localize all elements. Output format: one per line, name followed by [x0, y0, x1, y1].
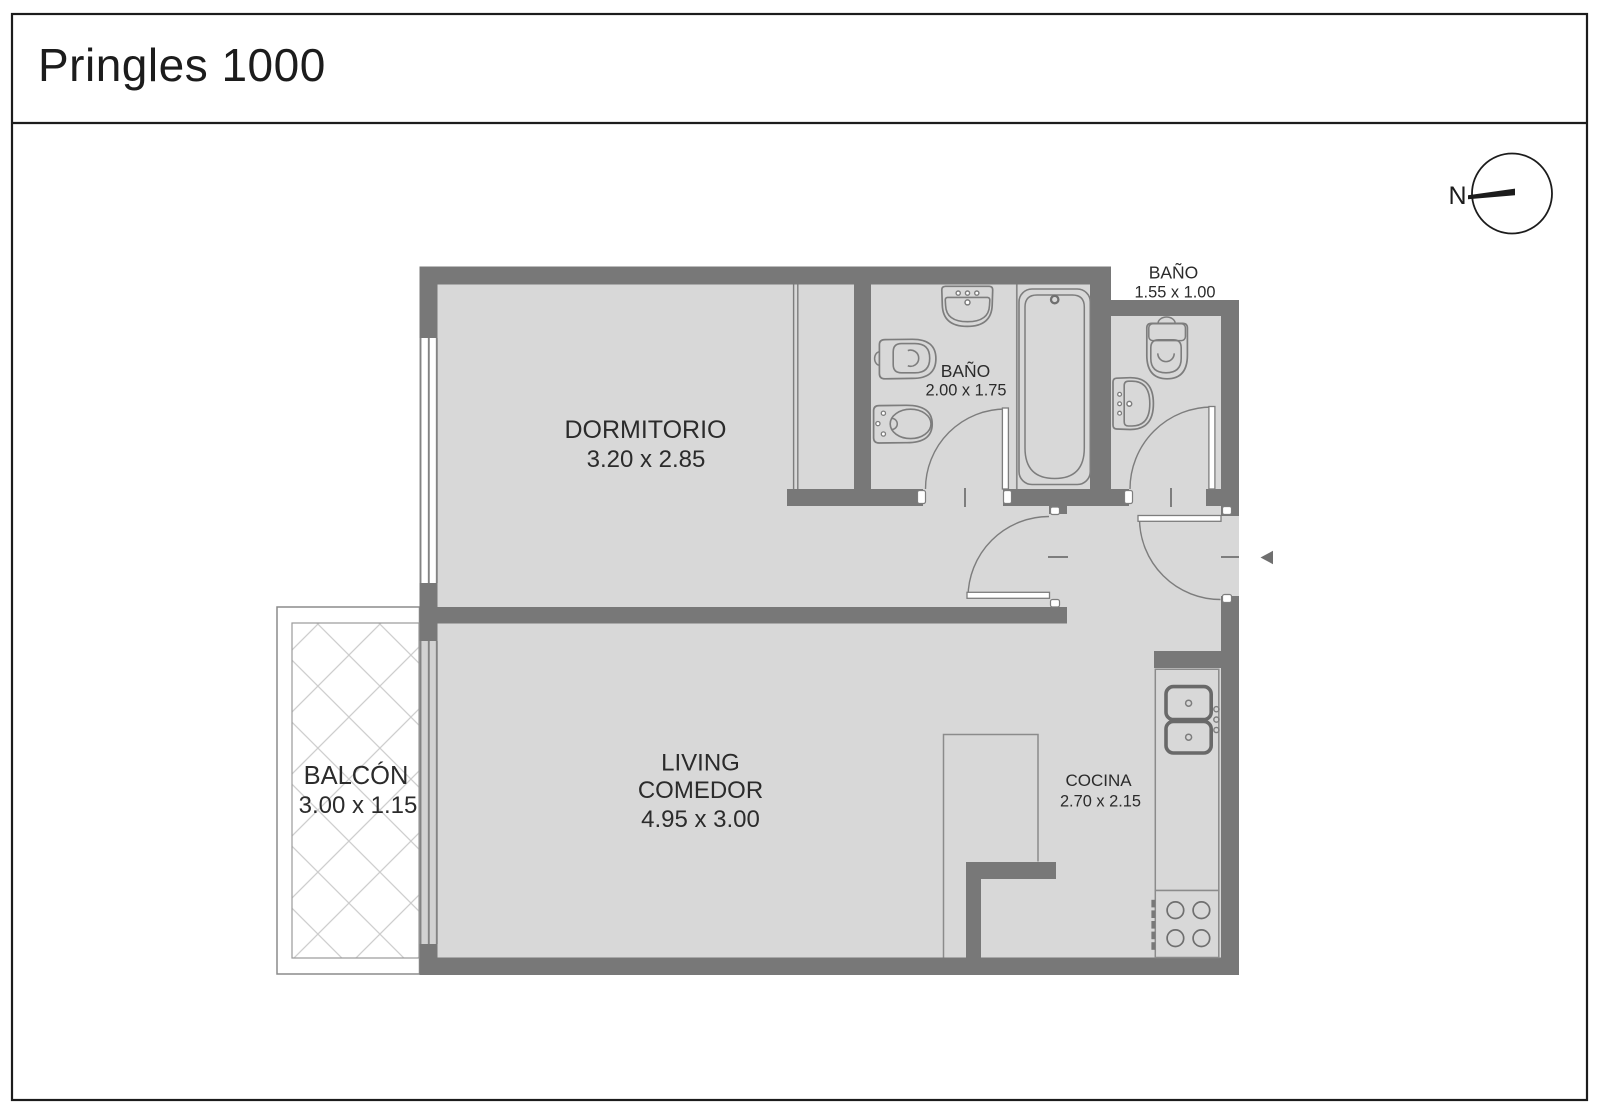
svg-text:Pringles 1000: Pringles 1000 — [38, 39, 326, 91]
svg-text:N: N — [1448, 182, 1466, 210]
svg-text:3.20 x 2.85: 3.20 x 2.85 — [587, 446, 706, 473]
svg-text:1.55 x 1.00: 1.55 x 1.00 — [1134, 284, 1215, 302]
svg-text:LIVING: LIVING — [661, 750, 740, 777]
svg-text:4.95 x 3.00: 4.95 x 3.00 — [641, 806, 760, 833]
svg-text:BAÑO: BAÑO — [941, 360, 991, 381]
svg-text:BALCÓN: BALCÓN — [304, 761, 409, 790]
svg-text:2.70 x 2.15: 2.70 x 2.15 — [1060, 793, 1141, 811]
svg-text:COMEDOR: COMEDOR — [638, 777, 763, 804]
svg-text:2.00 x 1.75: 2.00 x 1.75 — [925, 382, 1006, 400]
svg-text:COCINA: COCINA — [1065, 771, 1132, 790]
svg-text:3.00 x 1.15: 3.00 x 1.15 — [299, 792, 418, 819]
svg-text:DORMITORIO: DORMITORIO — [564, 416, 726, 444]
svg-text:BAÑO: BAÑO — [1149, 262, 1199, 283]
